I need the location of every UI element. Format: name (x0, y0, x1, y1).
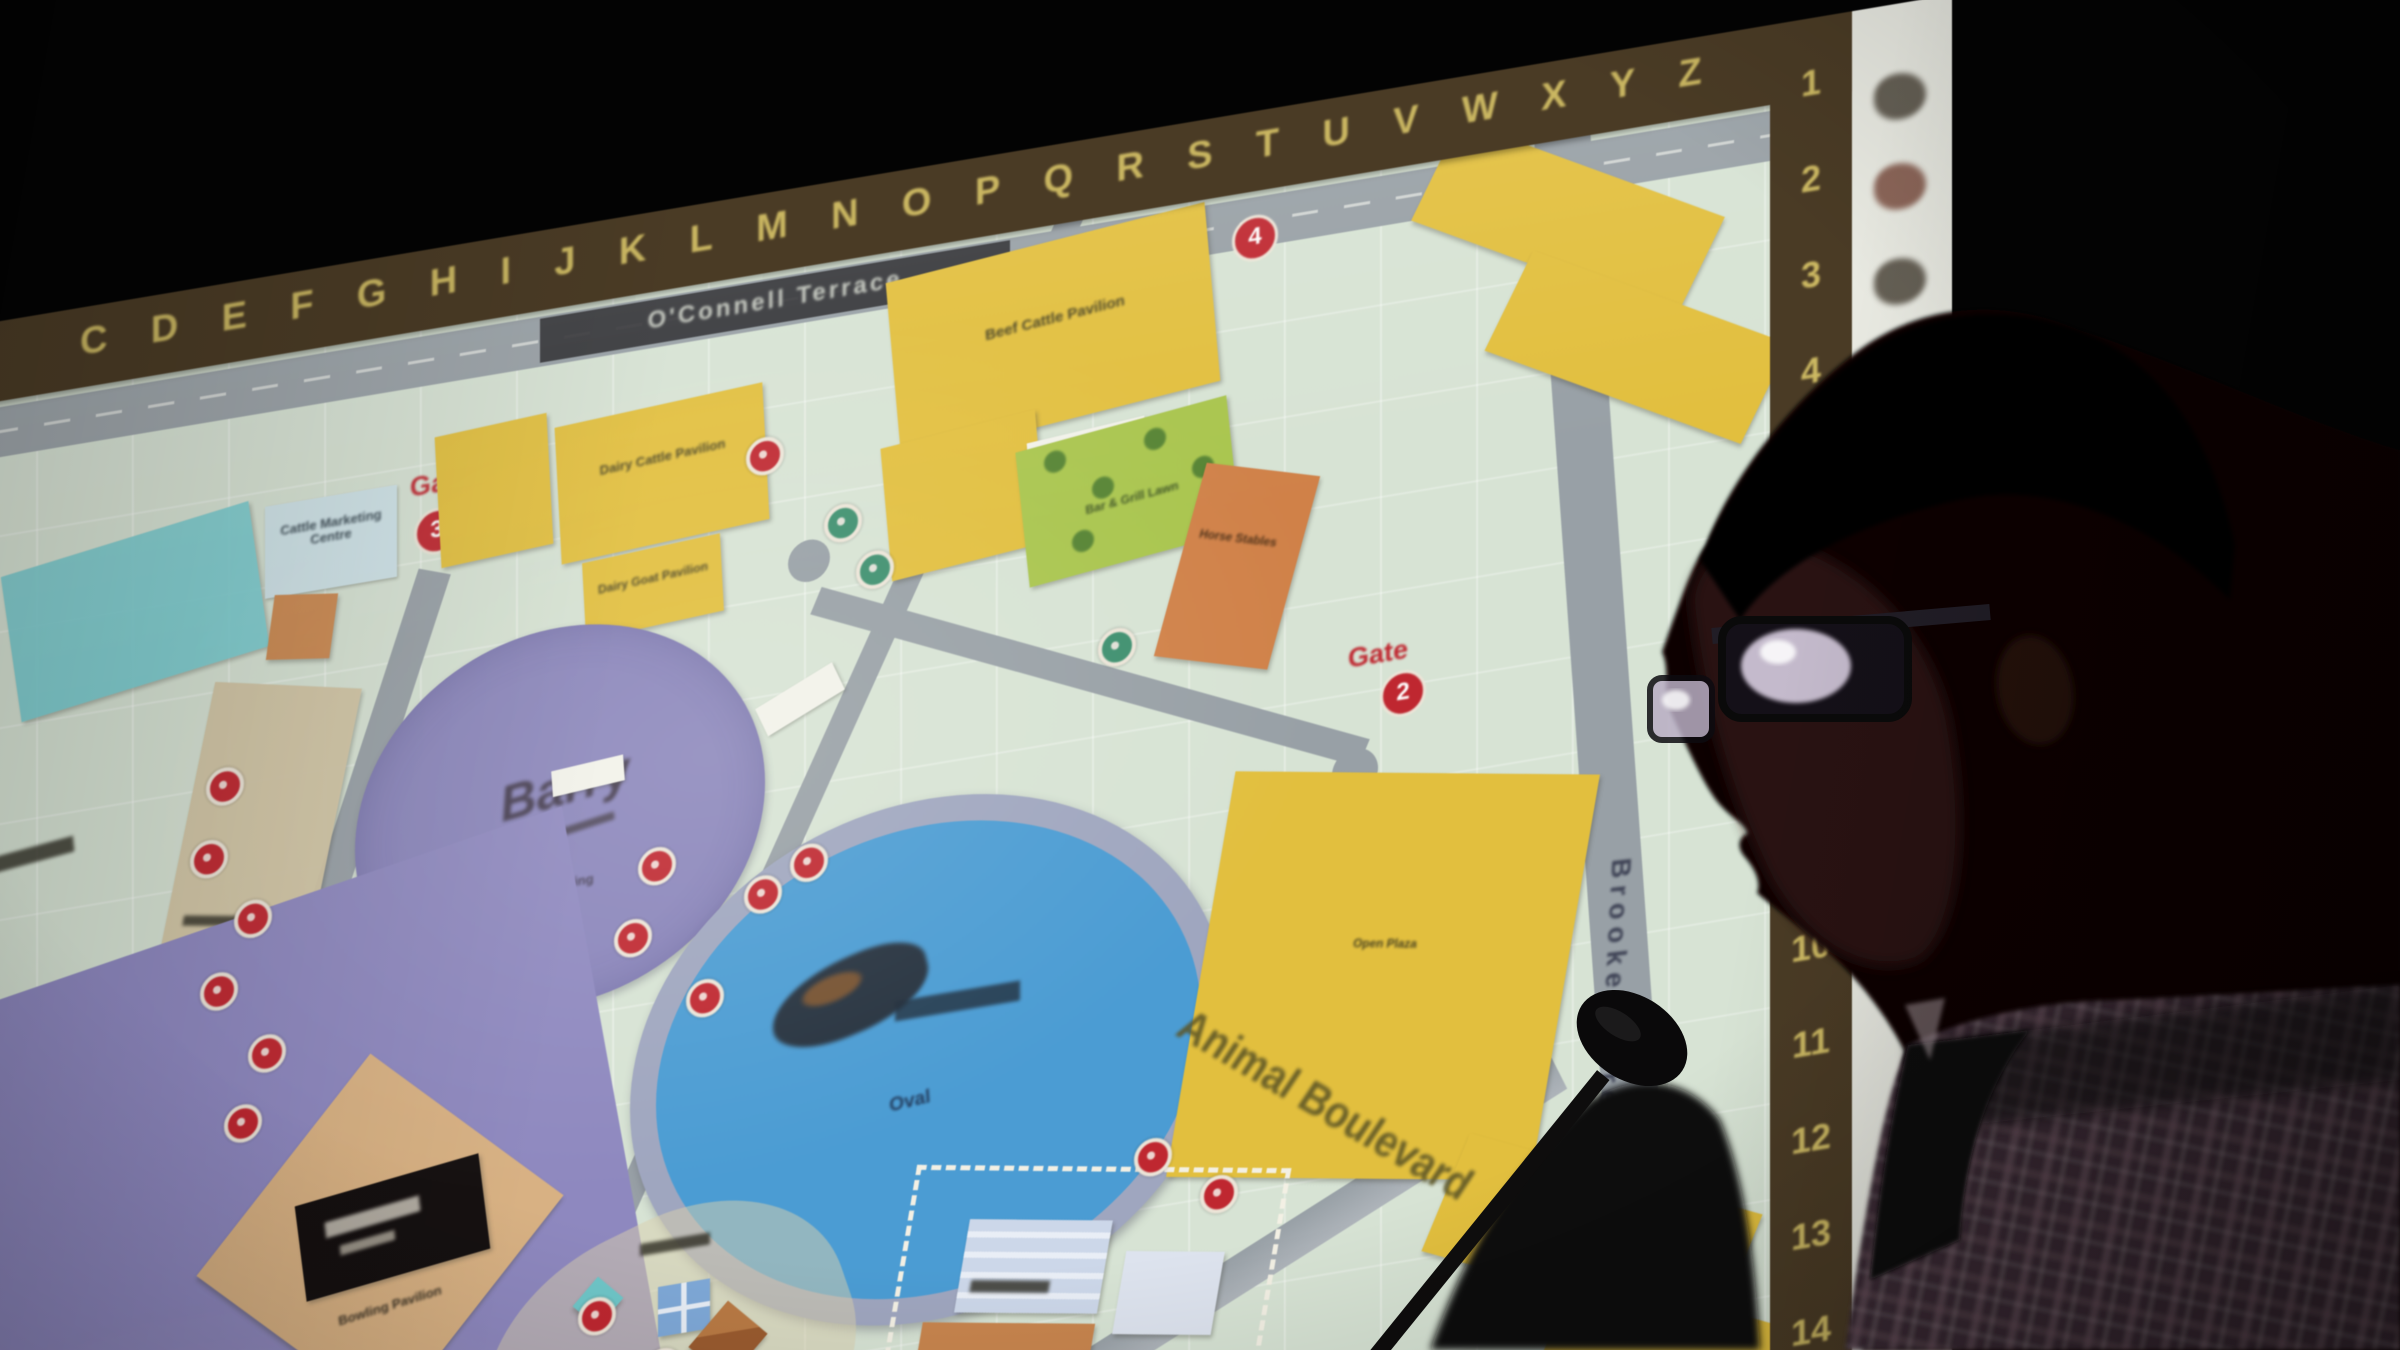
presenter-and-mic (0, 0, 2400, 1350)
glasses-lens-reflection (1741, 629, 1851, 703)
glasses-front-glint (1662, 690, 1690, 710)
photo-of-presentation: O'Connell Terrace Brookes Street Cattle … (0, 0, 2400, 1350)
glasses-lens-glint (1760, 640, 1796, 664)
